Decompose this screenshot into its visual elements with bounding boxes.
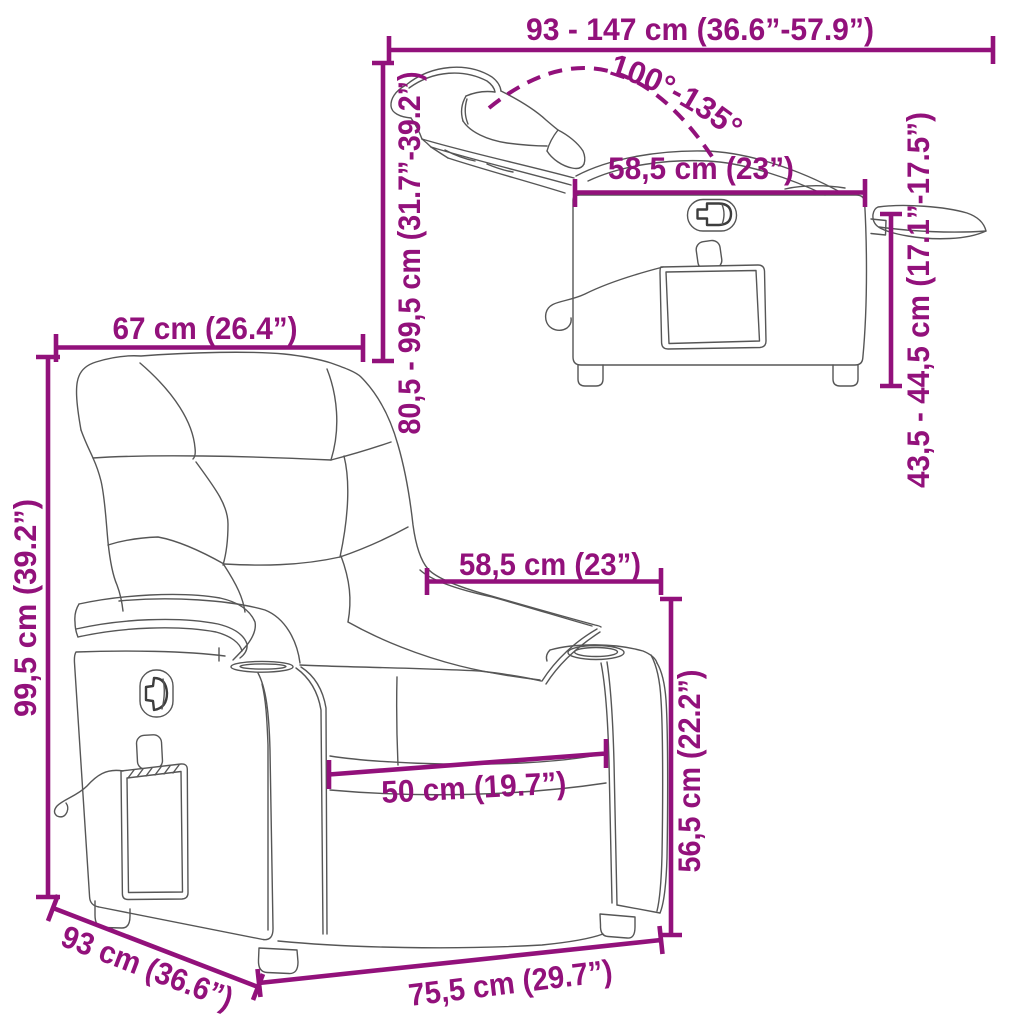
svg-text:58,5 cm (23”): 58,5 cm (23”) <box>459 546 641 582</box>
svg-text:93 - 147 cm (36.6”-57.9”): 93 - 147 cm (36.6”-57.9”) <box>526 11 874 47</box>
svg-text:99,5 cm (39.2”): 99,5 cm (39.2”) <box>7 499 43 717</box>
svg-text:80,5 - 99,5 cm (31.7”-39.2”): 80,5 - 99,5 cm (31.7”-39.2”) <box>391 72 427 435</box>
svg-text:67 cm (26.4”): 67 cm (26.4”) <box>113 310 298 346</box>
svg-text:56,5 cm (22.2”): 56,5 cm (22.2”) <box>671 670 707 873</box>
svg-text:43,5 - 44,5 cm (17.1”-17.5”): 43,5 - 44,5 cm (17.1”-17.5”) <box>900 112 936 488</box>
svg-text:58,5 cm (23”): 58,5 cm (23”) <box>608 150 794 186</box>
svg-text:75,5 cm (29.7”): 75,5 cm (29.7”) <box>406 952 614 1013</box>
svg-text:100°-135°: 100°-135° <box>606 46 750 145</box>
svg-text:50 cm (19.7”): 50 cm (19.7”) <box>380 764 567 810</box>
